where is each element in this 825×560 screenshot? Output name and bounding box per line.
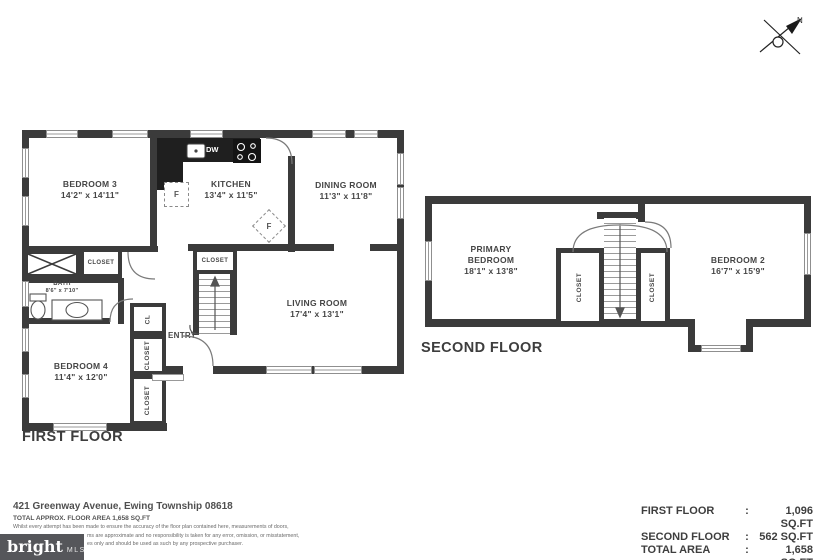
closet-box: CLOSET [556, 248, 604, 326]
first-floor-title: FIRST FLOOR [22, 429, 123, 445]
staircase-down [604, 218, 636, 318]
entry-label: ENTRY [168, 331, 196, 340]
window [46, 130, 78, 138]
room-kitchen: KITCHEN 13'4" x 11'5" [181, 179, 281, 201]
wall [638, 196, 645, 222]
room-dims: 11'3" x 11'8" [296, 191, 396, 202]
logo-brand-text: bright [7, 537, 63, 557]
summary-value: 1,658 SQ.FT [751, 544, 813, 560]
wall [150, 130, 157, 252]
window [312, 130, 346, 138]
second-floor-title: SECOND FLOOR [421, 340, 543, 356]
room-primary-bedroom: PRIMARY BEDROOM 18'1" x 13'8" [436, 244, 546, 277]
summary-row-first-floor: FIRST FLOOR : 1,096 SQ.FT [641, 505, 813, 531]
summary-colon: : [743, 505, 751, 531]
summary-colon: : [743, 544, 751, 560]
bright-mls-logo: bright MLS [0, 534, 84, 560]
floor-plan-page: DW F F CLOSET CLOSET CL CLOSET CLOSET [0, 0, 825, 560]
window [397, 153, 404, 185]
window [397, 187, 404, 219]
window [190, 130, 223, 138]
closet-box: CLOSET [130, 375, 166, 425]
staircase-up [199, 274, 230, 334]
furnace-marker-diamond: F [252, 209, 286, 243]
room-dims: 16'7" x 15'9" [688, 266, 788, 277]
disclaimer-line: Whilst every attempt has been made to en… [13, 524, 289, 530]
summary-value: 1,096 SQ.FT [751, 505, 813, 531]
window [266, 366, 312, 374]
closet-label: CLOSET [88, 260, 115, 266]
summary-label: SECOND FLOOR [641, 531, 743, 544]
room-name: BEDROOM 4 [31, 361, 131, 372]
linen-closet-box [24, 250, 80, 278]
logo-mls-text: MLS [67, 547, 86, 554]
wall [288, 156, 295, 252]
dishwasher-label: DW [206, 145, 219, 154]
door-arc [645, 222, 671, 248]
sink-basin-icon [66, 303, 88, 318]
window [22, 281, 29, 307]
wall [370, 244, 404, 251]
room-dining: DINING ROOM 11'3" x 11'8" [296, 180, 396, 202]
room-dims: 11'4" x 12'0" [31, 372, 131, 383]
wall [425, 196, 811, 204]
closet-box: CLOSET [80, 248, 122, 278]
room-name: BEDROOM [436, 255, 546, 266]
property-address: 421 Greenway Avenue, Ewing Township 0861… [13, 501, 233, 512]
window [804, 233, 811, 275]
toilet-icon [31, 301, 45, 319]
vanity-icon [52, 300, 102, 320]
window [22, 328, 29, 352]
toilet-icon [30, 294, 46, 301]
closet-label: CLOSET [202, 258, 229, 264]
summary-colon: : [743, 531, 751, 544]
room-name: KITCHEN [181, 179, 281, 190]
room-name: DINING ROOM [296, 180, 396, 191]
compass-hub [773, 37, 783, 47]
closet-box: CLOSET [130, 335, 166, 375]
room-name: PRIMARY [436, 244, 546, 255]
window [314, 366, 362, 374]
area-summary: FIRST FLOOR : 1,096 SQ.FT SECOND FLOOR :… [641, 505, 813, 560]
window [701, 345, 741, 352]
cl-label: CL [144, 314, 151, 324]
closet-box: CLOSET [193, 248, 237, 274]
bath-fixtures [30, 294, 102, 320]
window [354, 130, 378, 138]
disclaimer-line: es only and should be used as such by an… [87, 541, 243, 547]
disclaimer-line: ms are approximate and no responsibility… [87, 533, 299, 539]
summary-value: 562 SQ.FT [751, 531, 813, 544]
door-opening [183, 365, 213, 375]
window [425, 241, 432, 281]
closet-label: CLOSET [145, 385, 152, 414]
entry-stoop [152, 374, 184, 381]
closet-label: CLOSET [650, 272, 657, 301]
room-dims: 18'1" x 13'8" [436, 266, 546, 277]
closet-label: CLOSET [145, 340, 152, 369]
door-arc [128, 252, 155, 279]
summary-row-total-area: TOTAL AREA : 1,658 SQ.FT [641, 544, 813, 560]
room-bedroom-3: BEDROOM 3 14'2" x 14'11" [40, 179, 140, 201]
room-name: BEDROOM 2 [688, 255, 788, 266]
compass-icon: N [760, 16, 803, 54]
total-area-note: TOTAL APPROX. FLOOR AREA 1,658 SQ.FT [13, 515, 150, 522]
closet-box: CLOSET [636, 248, 670, 326]
window [22, 374, 29, 398]
room-dims: 14'2" x 14'11" [40, 190, 140, 201]
room-bedroom-2: BEDROOM 2 16'7" x 15'9" [688, 255, 788, 277]
room-living: LIVING ROOM 17'4" x 13'1" [267, 298, 367, 320]
furnace-marker-label: F [174, 190, 179, 199]
window [22, 148, 29, 178]
window [112, 130, 148, 138]
summary-label: FIRST FLOOR [641, 505, 743, 531]
furnace-marker-label: F [267, 221, 272, 230]
room-bath: BATH 8'6" x 7'10" [32, 281, 92, 295]
closet-label: CLOSET [577, 272, 584, 301]
cl-closet-box: CL [130, 303, 166, 335]
room-dims: 13'4" x 11'5" [181, 190, 281, 201]
summary-label: TOTAL AREA [641, 544, 743, 560]
compass-north-label: N [797, 16, 803, 25]
wall [746, 319, 811, 327]
door-arc [183, 336, 213, 366]
wall [118, 278, 124, 324]
room-dims: 8'6" x 7'10" [32, 288, 92, 295]
room-bedroom-4: BEDROOM 4 11'4" x 12'0" [31, 361, 131, 383]
compass-needle [786, 18, 802, 34]
room-name: LIVING ROOM [267, 298, 367, 309]
summary-row-second-floor: SECOND FLOOR : 562 SQ.FT [641, 531, 813, 544]
room-name: BATH [32, 281, 92, 288]
room-dims: 17'4" x 13'1" [267, 309, 367, 320]
wall [22, 318, 110, 324]
room-name: BEDROOM 3 [40, 179, 140, 190]
window [22, 196, 29, 226]
